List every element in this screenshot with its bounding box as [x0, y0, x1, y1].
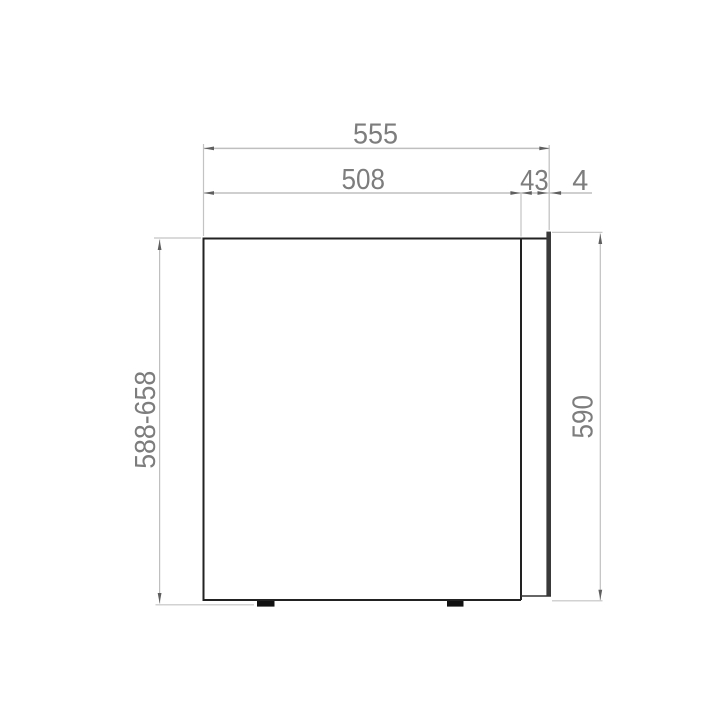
svg-text:590: 590	[568, 395, 600, 439]
svg-text:4: 4	[572, 165, 588, 197]
svg-text:43: 43	[520, 165, 549, 197]
svg-text:588-658: 588-658	[130, 371, 162, 469]
svg-text:555: 555	[353, 119, 398, 151]
svg-text:508: 508	[342, 164, 386, 196]
